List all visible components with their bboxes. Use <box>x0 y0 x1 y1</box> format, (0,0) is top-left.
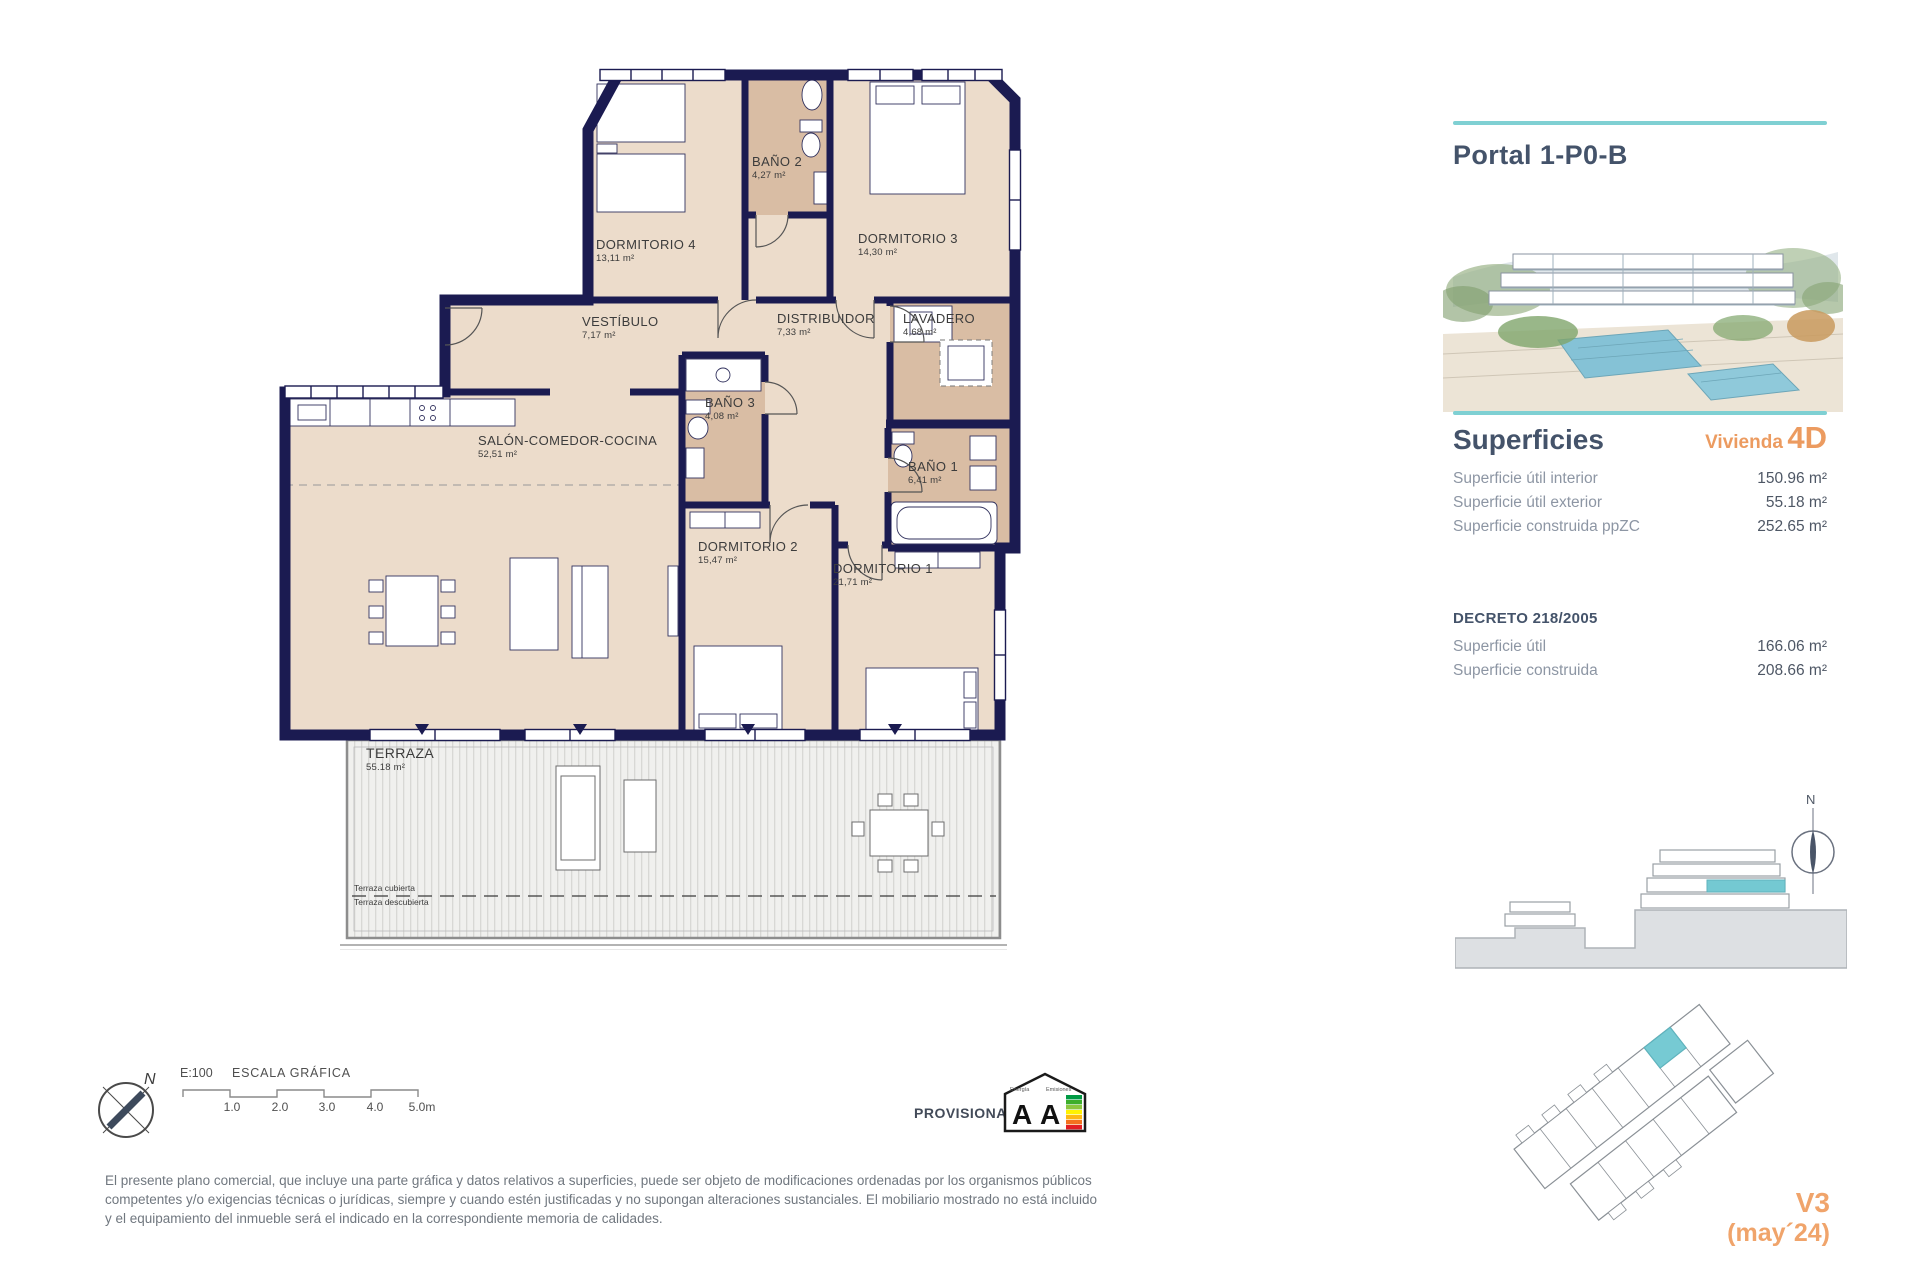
room-label-bano-3: BAÑO 3 4,08 m² <box>705 396 755 422</box>
room-area: 7,33 m² <box>777 327 875 338</box>
room-area: 4,68 m² <box>903 327 975 338</box>
room-label-distribuidor: DISTRIBUIDOR 7,33 m² <box>777 312 875 338</box>
divider-top <box>1453 121 1827 125</box>
scale-tick: 1.0 <box>215 1100 249 1114</box>
version-number: V3 <box>1500 1186 1830 1219</box>
scale-title: ESCALA GRÁFICA <box>232 1066 351 1080</box>
plan-north-compass-icon: N <box>86 1066 166 1146</box>
room-area: 15,47 m² <box>698 555 798 566</box>
row-value: 208.66 m² <box>1757 662 1827 680</box>
page: { "colors": {"accent_teal": "#7fd0d3", "… <box>0 0 1920 1280</box>
terrace-area <box>340 740 1007 950</box>
table-row: Superficie útil exterior 55.18 m² <box>1453 494 1827 512</box>
scale-tick: 4.0 <box>358 1100 392 1114</box>
room-label-dormitorio-3: DORMITORIO 3 14,30 m² <box>858 232 958 258</box>
table-row: Superficie construida ppZC 252.65 m² <box>1453 518 1827 536</box>
version-block: V3 (may´24) <box>1500 1186 1830 1249</box>
room-name: VESTÍBULO <box>582 315 659 329</box>
room-name: BAÑO 2 <box>752 155 802 169</box>
svg-text:Emisiones: Emisiones <box>1046 1087 1072 1093</box>
room-area: 4,27 m² <box>752 170 802 181</box>
row-value: 150.96 m² <box>1757 470 1827 488</box>
terrace-note-uncovered: Terraza descubierta <box>354 897 429 907</box>
row-value: 55.18 m² <box>1766 494 1827 512</box>
scale-tick: 3.0 <box>310 1100 344 1114</box>
scale-tick: 2.0 <box>263 1100 297 1114</box>
version-date: (may´24) <box>1500 1219 1830 1249</box>
room-name: DORMITORIO 2 <box>698 540 798 554</box>
svg-text:Energía: Energía <box>1010 1087 1030 1093</box>
room-area: 21,71 m² <box>833 577 933 588</box>
room-name: DORMITORIO 3 <box>858 232 958 246</box>
room-label-dormitorio-1: DORMITORIO 1 21,71 m² <box>833 562 933 588</box>
superficies-header: Superficies Vivienda 4D <box>1453 420 1827 456</box>
room-name: DORMITORIO 4 <box>596 238 696 252</box>
divider-superficies <box>1453 411 1827 415</box>
room-area: 52,51 m² <box>478 449 657 460</box>
svg-text:N: N <box>1806 792 1815 807</box>
superficies-heading: Superficies <box>1453 424 1604 456</box>
energy-color-bars <box>1066 1095 1082 1129</box>
room-area: 14,30 m² <box>858 247 958 258</box>
room-label-dormitorio-4: DORMITORIO 4 13,11 m² <box>596 238 696 264</box>
room-area: 13,11 m² <box>596 253 696 264</box>
room-label-bano-2: BAÑO 2 4,27 m² <box>752 155 802 181</box>
room-label-terraza: TERRAZA 55.18 m² <box>366 746 434 773</box>
room-label-lavadero: LAVADERO 4,68 m² <box>903 312 975 338</box>
row-value: 166.06 m² <box>1757 638 1827 656</box>
room-name: BAÑO 1 <box>908 460 958 474</box>
svg-text:A: A <box>1040 1099 1060 1130</box>
highlighted-unit-section <box>1707 880 1785 892</box>
decreto-heading: DECRETO 218/2005 <box>1453 610 1598 627</box>
row-label: Superficie construida <box>1453 662 1598 680</box>
row-value: 252.65 m² <box>1757 518 1827 536</box>
room-label-salon-comedor-cocina: SALÓN-COMEDOR-COCINA 52,51 m² <box>478 434 657 460</box>
scale-tick: 5.0m <box>402 1100 442 1114</box>
room-label-vestibulo: VESTÍBULO 7,17 m² <box>582 315 659 341</box>
building-watercolor-illustration <box>1443 182 1843 412</box>
room-name: SALÓN-COMEDOR-COCINA <box>478 434 657 448</box>
room-area: 7,17 m² <box>582 330 659 341</box>
room-name: DORMITORIO 1 <box>833 562 933 576</box>
room-name: LAVADERO <box>903 312 975 326</box>
provisional-label: PROVISIONAL <box>914 1105 1016 1121</box>
room-label-bano-1: BAÑO 1 6,41 m² <box>908 460 958 486</box>
table-row: Superficie útil interior 150.96 m² <box>1453 470 1827 488</box>
row-label: Superficie útil exterior <box>1453 494 1602 512</box>
row-label: Superficie construida ppZC <box>1453 518 1640 536</box>
decreto-table: Superficie útil 166.06 m² Superficie con… <box>1453 638 1827 686</box>
svg-text:N: N <box>144 1071 156 1088</box>
table-row: Superficie construida 208.66 m² <box>1453 662 1827 680</box>
energy-rating-icon: Energía Emisiones A A <box>1002 1070 1088 1134</box>
row-label: Superficie útil interior <box>1453 470 1598 488</box>
terrace-note-covered: Terraza cubierta <box>354 883 415 893</box>
legal-disclaimer: El presente plano comercial, que incluye… <box>105 1171 1105 1228</box>
scale-ratio-label: E:100 <box>180 1066 213 1080</box>
vivienda-badge: Vivienda 4D <box>1705 420 1827 456</box>
north-compass-icon: N <box>1792 792 1834 894</box>
building-section-diagram: N <box>1455 790 1847 970</box>
room-area: 4,08 m² <box>705 411 755 422</box>
room-area: 6,41 m² <box>908 475 958 486</box>
page-title: Portal 1-P0-B <box>1453 140 1628 171</box>
room-name: DISTRIBUIDOR <box>777 312 875 326</box>
row-label: Superficie útil <box>1453 638 1546 656</box>
room-label-dormitorio-2: DORMITORIO 2 15,47 m² <box>698 540 798 566</box>
table-row: Superficie útil 166.06 m² <box>1453 638 1827 656</box>
vivienda-value: 4D <box>1787 420 1827 455</box>
graphic-scale-bar <box>181 1084 425 1100</box>
room-name: TERRAZA <box>366 746 434 761</box>
svg-text:A: A <box>1012 1099 1032 1130</box>
vivienda-label: Vivienda <box>1705 432 1783 453</box>
room-area: 55.18 m² <box>366 762 434 773</box>
superficies-table: Superficie útil interior 150.96 m² Super… <box>1453 470 1827 542</box>
room-name: BAÑO 3 <box>705 396 755 410</box>
floor-plan-drawing <box>270 50 1120 950</box>
